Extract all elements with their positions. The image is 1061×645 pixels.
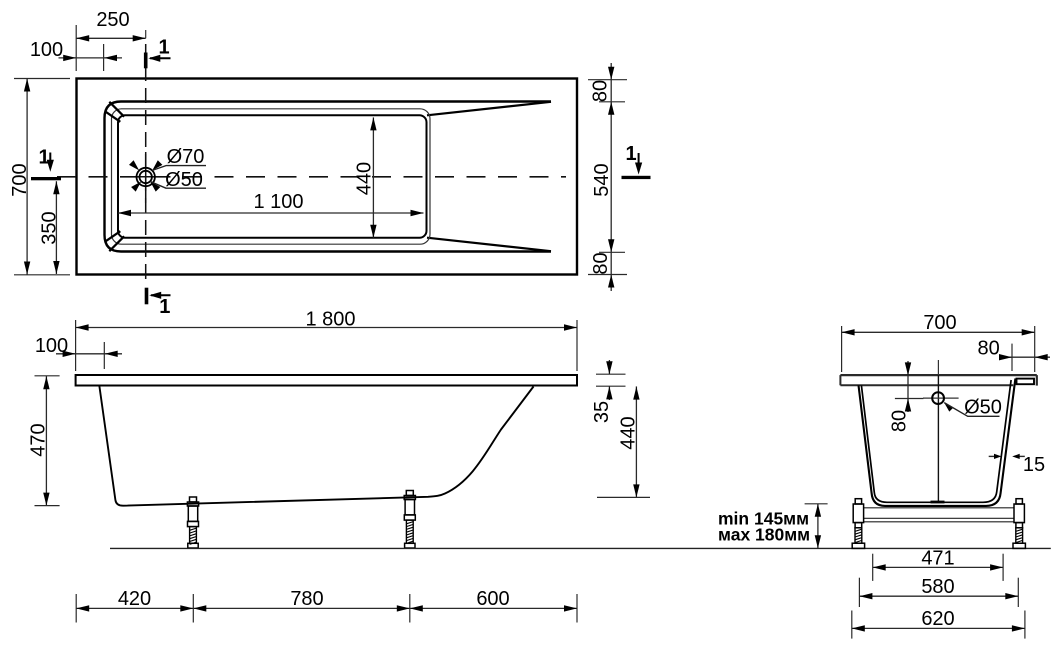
svg-text:580: 580	[921, 576, 954, 598]
svg-text:700: 700	[9, 163, 31, 196]
svg-text:Ø70: Ø70	[167, 146, 205, 168]
svg-text:мах 180мм: мах 180мм	[718, 525, 810, 545]
svg-text:780: 780	[290, 588, 323, 610]
svg-text:100: 100	[30, 39, 63, 61]
svg-text:440: 440	[354, 162, 376, 195]
svg-text:35: 35	[591, 401, 613, 423]
svg-text:Ø50: Ø50	[165, 169, 203, 191]
svg-text:600: 600	[476, 588, 509, 610]
svg-text:80: 80	[590, 80, 612, 102]
svg-text:100: 100	[35, 335, 68, 357]
svg-text:250: 250	[96, 9, 129, 31]
svg-text:1 100: 1 100	[253, 191, 303, 213]
svg-text:540: 540	[591, 163, 613, 196]
svg-text:Ø50: Ø50	[964, 397, 1002, 419]
svg-text:1 800: 1 800	[305, 309, 355, 331]
svg-text:80: 80	[889, 410, 911, 432]
svg-text:470: 470	[28, 423, 50, 456]
svg-text:80: 80	[590, 252, 612, 274]
svg-text:700: 700	[923, 312, 956, 334]
svg-text:350: 350	[39, 211, 61, 244]
svg-text:1: 1	[158, 37, 169, 59]
svg-text:15: 15	[1023, 454, 1045, 476]
svg-text:471: 471	[921, 548, 954, 570]
svg-text:420: 420	[118, 588, 151, 610]
svg-text:440: 440	[618, 416, 640, 449]
svg-text:1: 1	[38, 147, 49, 169]
svg-text:1: 1	[625, 143, 636, 165]
svg-text:1: 1	[159, 296, 170, 318]
svg-text:620: 620	[921, 608, 954, 630]
svg-text:80: 80	[977, 338, 999, 360]
